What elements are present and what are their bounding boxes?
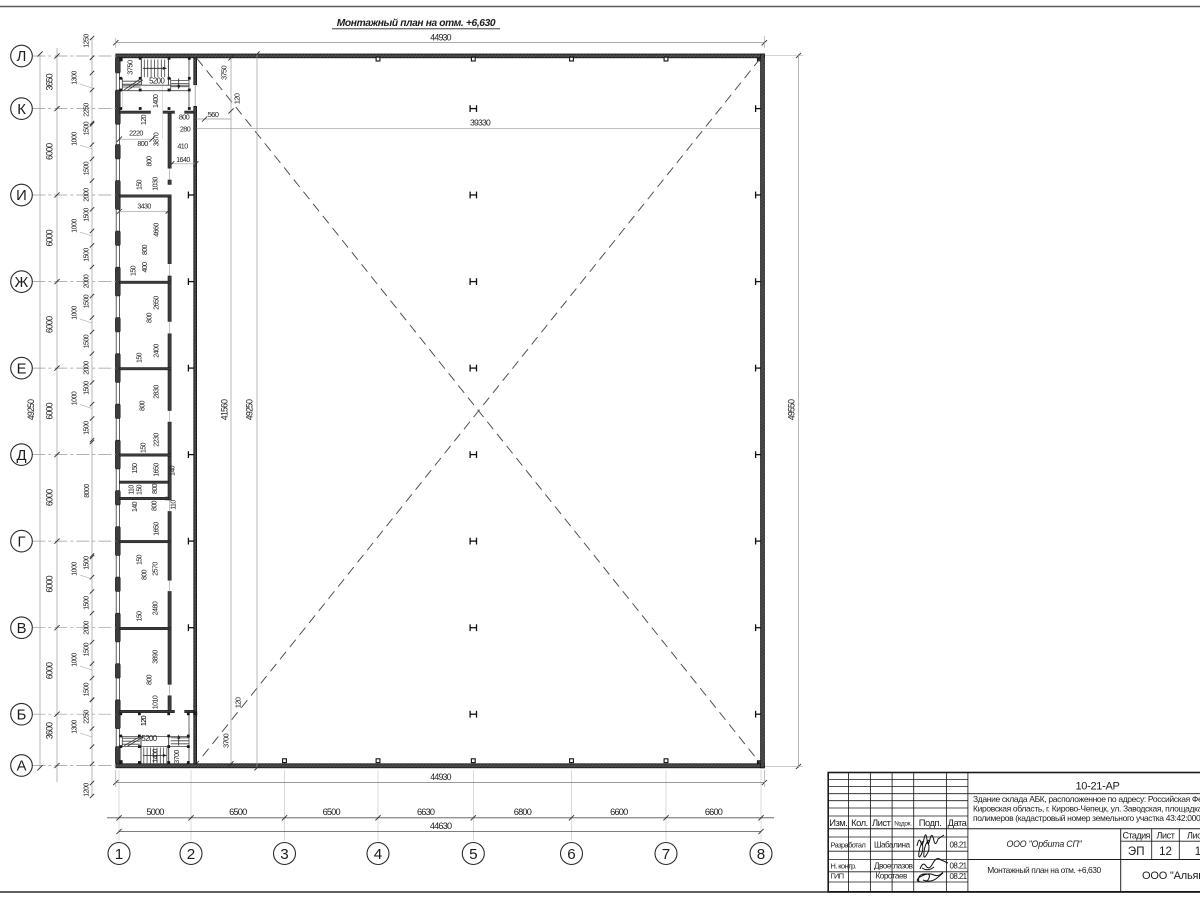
svg-text:А: А	[17, 759, 27, 775]
svg-text:3750: 3750	[126, 60, 135, 75]
svg-text:140: 140	[132, 501, 139, 512]
svg-text:2250: 2250	[84, 103, 91, 117]
svg-text:2: 2	[187, 846, 195, 863]
svg-text:6000: 6000	[45, 143, 55, 160]
svg-text:800: 800	[147, 674, 154, 685]
svg-text:49250: 49250	[26, 399, 36, 420]
svg-text:1000: 1000	[72, 653, 79, 667]
svg-text:1300: 1300	[72, 71, 79, 85]
svg-text:Монтажный план на отм. +6,630: Монтажный план на отм. +6,630	[987, 865, 1101, 875]
svg-text:10-21-АР: 10-21-АР	[1075, 781, 1119, 793]
svg-text:3600: 3600	[45, 722, 55, 739]
svg-text:280: 280	[180, 125, 191, 134]
svg-text:560: 560	[208, 110, 219, 119]
svg-text:44930: 44930	[430, 32, 451, 42]
svg-text:2250: 2250	[84, 710, 91, 724]
svg-text:120: 120	[234, 697, 243, 708]
svg-text:5200: 5200	[141, 734, 157, 743]
svg-text:Кол.: Кол.	[851, 817, 868, 828]
svg-text:2000: 2000	[84, 621, 91, 635]
svg-text:Дата: Дата	[948, 817, 968, 828]
svg-text:800: 800	[140, 400, 147, 411]
svg-text:140: 140	[170, 465, 177, 476]
svg-text:120: 120	[141, 114, 148, 125]
svg-text:800: 800	[142, 569, 149, 580]
svg-text:6600: 6600	[610, 807, 628, 817]
svg-text:Коротаев: Коротаев	[876, 871, 908, 880]
svg-text:8: 8	[757, 846, 765, 863]
svg-text:1500: 1500	[84, 334, 91, 348]
svg-text:800: 800	[142, 244, 149, 255]
svg-text:Подп.: Подп.	[919, 817, 941, 828]
svg-text:150: 150	[137, 352, 144, 363]
svg-text:К: К	[17, 102, 26, 118]
svg-text:6630: 6630	[417, 807, 435, 817]
svg-text:№док.: №док.	[894, 820, 912, 827]
svg-text:2000: 2000	[84, 361, 91, 375]
svg-text:1: 1	[115, 846, 123, 863]
svg-text:2570: 2570	[153, 562, 160, 576]
svg-text:6800: 6800	[514, 807, 532, 817]
svg-text:Б: Б	[17, 707, 27, 723]
svg-text:1250: 1250	[84, 34, 91, 48]
svg-text:4660: 4660	[154, 223, 161, 237]
svg-text:1500: 1500	[84, 682, 91, 696]
svg-text:В: В	[17, 621, 27, 637]
svg-text:110: 110	[129, 485, 136, 495]
svg-text:49250: 49250	[245, 399, 255, 420]
svg-text:12: 12	[1159, 846, 1172, 858]
svg-text:1000: 1000	[72, 562, 79, 576]
svg-text:1200: 1200	[84, 783, 91, 797]
svg-text:2830: 2830	[154, 385, 161, 399]
svg-text:Кировская область, г. Кирово-Ч: Кировская область, г. Кирово-Чепецк, ул.…	[973, 803, 1200, 813]
svg-text:2400: 2400	[154, 344, 161, 358]
svg-text:1500: 1500	[84, 381, 91, 395]
svg-text:1400: 1400	[153, 94, 160, 108]
svg-text:Стадия: Стадия	[1123, 830, 1151, 840]
svg-text:Д: Д	[16, 448, 26, 464]
svg-text:Разработал: Разработал	[831, 840, 866, 849]
svg-text:08.21: 08.21	[950, 862, 968, 871]
svg-text:Г: Г	[17, 534, 25, 550]
svg-text:44630: 44630	[430, 821, 452, 831]
svg-text:44930: 44930	[430, 772, 451, 782]
svg-text:2220: 2220	[129, 129, 143, 138]
svg-text:4: 4	[374, 846, 382, 863]
svg-text:6000: 6000	[45, 229, 55, 246]
svg-text:6000: 6000	[45, 575, 55, 592]
svg-text:1500: 1500	[84, 248, 91, 262]
svg-text:39330: 39330	[470, 118, 491, 128]
svg-text:ЭП: ЭП	[1128, 846, 1145, 858]
svg-text:150: 150	[137, 611, 144, 622]
svg-text:1640: 1640	[176, 155, 190, 164]
svg-text:41560: 41560	[220, 399, 230, 420]
svg-text:6500: 6500	[323, 807, 341, 817]
svg-text:6000: 6000	[45, 402, 55, 419]
svg-text:Монтажный план на отм. +6,630: Монтажный план на отм. +6,630	[337, 18, 496, 29]
svg-text:800: 800	[147, 156, 154, 167]
svg-text:6: 6	[567, 846, 575, 863]
svg-text:1650: 1650	[154, 522, 161, 536]
svg-text:800: 800	[137, 139, 148, 148]
svg-text:5: 5	[469, 846, 477, 863]
svg-text:150: 150	[137, 554, 144, 565]
svg-text:2480: 2480	[153, 601, 160, 615]
svg-text:1000: 1000	[72, 132, 79, 146]
svg-text:Шабалина: Шабалина	[874, 840, 910, 849]
svg-text:Л: Л	[17, 49, 27, 65]
svg-text:3700: 3700	[222, 733, 231, 748]
svg-text:150: 150	[131, 265, 138, 276]
svg-text:150: 150	[141, 442, 148, 453]
svg-text:1500: 1500	[84, 121, 91, 135]
svg-text:1650: 1650	[154, 463, 161, 477]
svg-text:7: 7	[662, 846, 670, 863]
svg-text:3650: 3650	[45, 73, 55, 90]
svg-text:1: 1	[1195, 846, 1200, 858]
svg-text:1500: 1500	[84, 161, 91, 175]
svg-text:6500: 6500	[229, 807, 247, 817]
svg-text:ООО "Орбита СП": ООО "Орбита СП"	[1006, 839, 1082, 849]
svg-text:800: 800	[152, 500, 159, 511]
svg-text:Здание склада АБК, расположенн: Здание склада АБК, расположенное по адре…	[973, 794, 1200, 804]
svg-text:1500: 1500	[84, 421, 91, 435]
svg-text:1500: 1500	[84, 556, 91, 570]
svg-text:110: 110	[171, 500, 178, 510]
svg-text:Двоеглазов: Двоеглазов	[874, 861, 913, 870]
svg-text:49550: 49550	[787, 399, 797, 420]
svg-text:Н. контр.: Н. контр.	[831, 861, 857, 870]
svg-text:400: 400	[142, 262, 149, 273]
svg-text:Ж: Ж	[15, 275, 29, 291]
svg-text:Изм.: Изм.	[829, 817, 847, 828]
svg-text:1500: 1500	[84, 294, 91, 308]
svg-text:2230: 2230	[154, 433, 161, 447]
svg-text:08.21: 08.21	[950, 841, 968, 850]
svg-text:Е: Е	[17, 361, 27, 377]
svg-text:3: 3	[280, 846, 288, 863]
svg-text:2650: 2650	[154, 296, 161, 310]
svg-text:3430: 3430	[137, 204, 151, 211]
svg-text:Лист: Лист	[1187, 830, 1200, 840]
svg-text:1400: 1400	[153, 749, 160, 763]
svg-text:1010: 1010	[153, 695, 160, 709]
svg-text:ГИП: ГИП	[831, 871, 844, 880]
svg-text:410: 410	[177, 142, 188, 151]
svg-text:120: 120	[233, 93, 242, 104]
svg-text:150: 150	[137, 484, 144, 495]
svg-text:6000: 6000	[45, 489, 55, 506]
svg-text:1500: 1500	[84, 642, 91, 656]
svg-text:3870: 3870	[154, 132, 161, 146]
svg-text:2000: 2000	[84, 188, 91, 202]
svg-text:800: 800	[152, 483, 159, 494]
svg-text:1000: 1000	[72, 306, 79, 320]
svg-text:1500: 1500	[84, 208, 91, 222]
svg-text:3700: 3700	[174, 750, 181, 764]
svg-text:И: И	[16, 188, 27, 204]
svg-text:Лист: Лист	[872, 817, 892, 828]
svg-text:1000: 1000	[72, 391, 79, 405]
svg-text:полимеров (кадастровый номер з: полимеров (кадастровый номер земельного …	[973, 813, 1200, 823]
svg-text:6000: 6000	[45, 316, 55, 333]
svg-text:150: 150	[132, 463, 139, 474]
svg-text:ООО "Альянс: ООО "Альянс	[1142, 870, 1200, 882]
svg-text:150: 150	[137, 179, 144, 190]
svg-text:2000: 2000	[84, 274, 91, 288]
svg-text:5200: 5200	[149, 76, 165, 85]
svg-text:3890: 3890	[153, 650, 160, 664]
svg-text:1500: 1500	[84, 596, 91, 610]
svg-text:08.21: 08.21	[950, 872, 968, 881]
svg-text:3750: 3750	[220, 65, 229, 80]
svg-text:6600: 6600	[705, 807, 723, 817]
svg-text:5000: 5000	[146, 807, 164, 817]
svg-text:1300: 1300	[72, 720, 79, 734]
svg-text:1000: 1000	[72, 219, 79, 233]
svg-text:Лист: Лист	[1157, 830, 1175, 840]
svg-text:800: 800	[179, 113, 190, 122]
svg-text:1030: 1030	[153, 177, 160, 191]
svg-text:120: 120	[141, 715, 148, 726]
svg-text:800: 800	[147, 312, 154, 323]
svg-text:6000: 6000	[45, 662, 55, 679]
svg-text:8000: 8000	[84, 484, 91, 498]
